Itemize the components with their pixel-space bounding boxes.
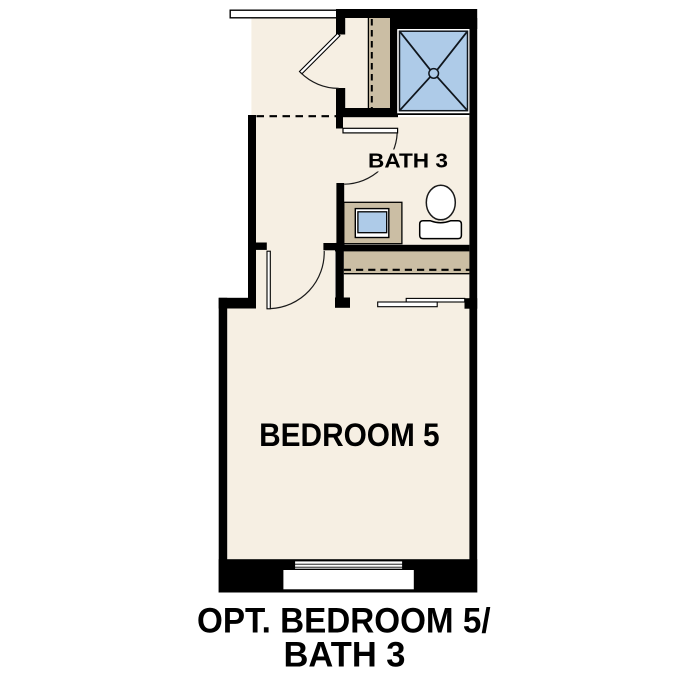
svg-text:BEDROOM 5: BEDROOM 5 [259, 417, 440, 453]
svg-text:BATH 3: BATH 3 [368, 150, 448, 173]
svg-text:BATH 3: BATH 3 [284, 635, 406, 675]
